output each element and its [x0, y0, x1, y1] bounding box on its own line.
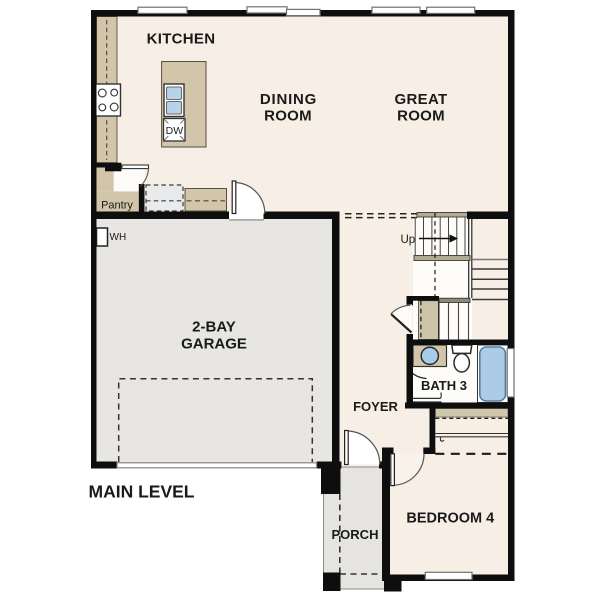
svg-text:2-BAY: 2-BAY	[192, 318, 236, 335]
svg-text:FOYER: FOYER	[353, 399, 398, 414]
svg-text:Pantry: Pantry	[101, 200, 133, 212]
svg-text:BEDROOM 4: BEDROOM 4	[406, 511, 494, 527]
svg-text:DINING: DINING	[260, 91, 317, 108]
svg-text:KITCHEN: KITCHEN	[147, 31, 216, 48]
svg-text:Up: Up	[401, 234, 416, 246]
svg-text:MAIN LEVEL: MAIN LEVEL	[89, 482, 195, 502]
svg-text:BATH 3: BATH 3	[421, 378, 467, 393]
svg-text:WH: WH	[110, 232, 127, 243]
svg-text:ROOM: ROOM	[397, 108, 445, 125]
svg-text:PORCH: PORCH	[332, 527, 379, 542]
svg-text:GARAGE: GARAGE	[181, 336, 247, 353]
svg-text:DW: DW	[166, 125, 184, 137]
svg-text:ROOM: ROOM	[264, 108, 312, 125]
svg-text:GREAT: GREAT	[395, 91, 448, 108]
